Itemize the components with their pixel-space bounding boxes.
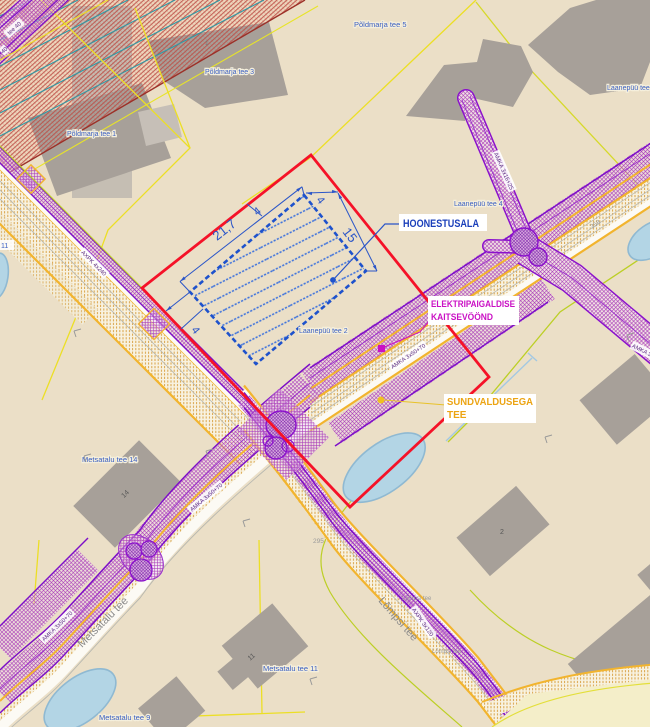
svg-text:295: 295 [313,538,324,545]
svg-text:SUNDVALDUSEGA: SUNDVALDUSEGA [447,397,533,408]
svg-text:Metsatalu tee 14: Metsatalu tee 14 [82,455,137,464]
svg-text:2: 2 [500,529,504,536]
svg-text:Metsatalu tee 9: Metsatalu tee 9 [99,713,150,722]
svg-text:HOONESTUSALA: HOONESTUSALA [403,218,479,230]
svg-text:Lõmpsi tee: Lõmpsi tee [432,649,462,655]
svg-text:11: 11 [1,243,8,250]
svg-text:Põldmarja tee 5: Põldmarja tee 5 [354,20,407,29]
svg-text:Põldmarja tee 3: Põldmarja tee 3 [205,69,254,76]
svg-text:1: 1 [205,40,209,47]
svg-text:Põldmarja tee 1: Põldmarja tee 1 [67,131,116,138]
svg-text:Laanepüü tee 2: Laanepüü tee 2 [299,328,348,335]
svg-text:Lõmpsi tee: Lõmpsi tee [402,596,432,602]
svg-text:Laanepüü tee 8: Laanepüü tee 8 [607,85,650,92]
svg-text:KAITSEVÖÖND: KAITSEVÖÖND [431,312,493,323]
svg-text:TEE: TEE [447,410,467,421]
svg-text:Laanepüü tee 4: Laanepüü tee 4 [454,201,503,208]
svg-text:Metsatalu tee 11: Metsatalu tee 11 [263,664,318,673]
svg-text:ELEKTRIPAIGALDISE: ELEKTRIPAIGALDISE [431,299,516,310]
